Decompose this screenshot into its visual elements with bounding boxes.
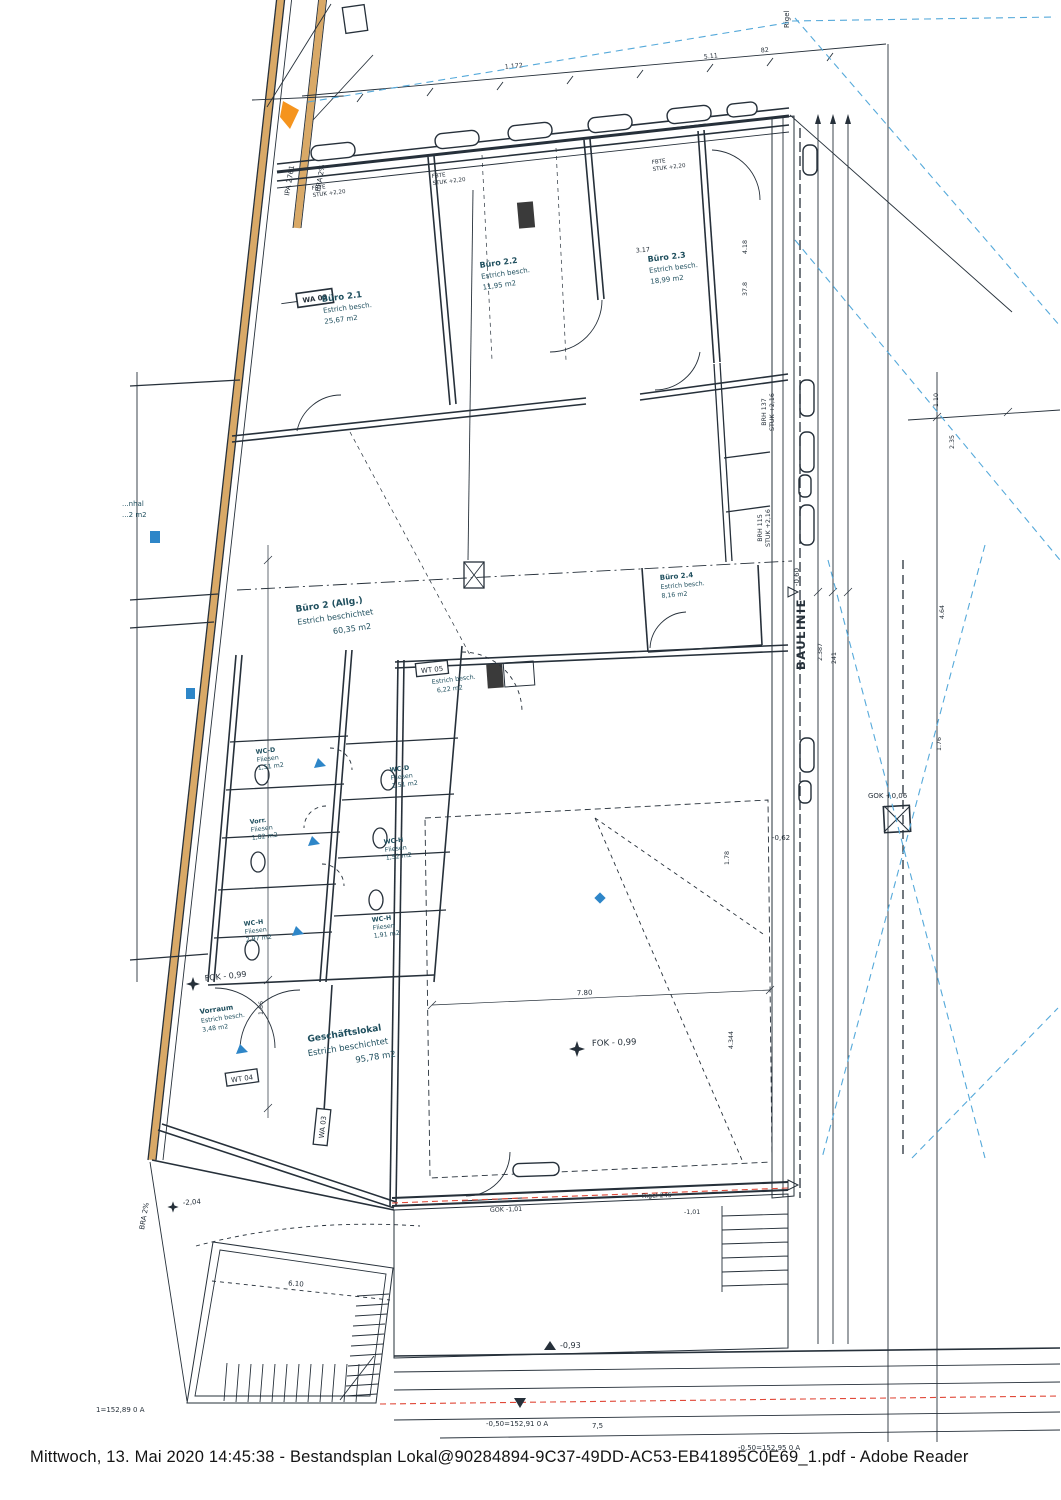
rigel-top-label: Rigel <box>783 10 791 28</box>
dim-418: 4.18 <box>742 240 749 254</box>
room-label-abstell-finish: Estrich besch. <box>431 674 476 686</box>
dim-610: 6.10 <box>288 1279 304 1288</box>
minus093-label: -0,93 <box>560 1341 581 1350</box>
room-labels-upper: WA 03 Büro 2.1 Estrich besch. 25,67 m2 B… <box>280 240 749 695</box>
wa03-bottom-box: WA 03 <box>313 1108 331 1145</box>
room-label-buro21-area: 25,67 m2 <box>324 314 358 326</box>
top-dimension-line: 1.172 5.11 82 <box>302 44 886 102</box>
brh137-label: BRH 137 <box>761 398 768 425</box>
dim-317: 3.17 <box>636 247 650 255</box>
cutoff-label-1: ...nhal <box>122 500 144 508</box>
dim-178: 1.78 <box>724 851 731 865</box>
room-label-buro24-name: Büro 2.4 <box>659 571 693 582</box>
cutoff-label-2: ...2 m2 <box>122 511 147 519</box>
dim-176: 1.76 <box>936 737 943 751</box>
gok006-label: GOK +0,06 <box>868 792 908 800</box>
dim-780: 7.80 <box>577 989 593 998</box>
floorplan-canvas: IPA 2761 BRA 2% 1.172 5.11 82 FBTE STUK … <box>0 0 1061 1500</box>
geschaeftslokal: Geschäftslokal Estrich beschichtet 95,78… <box>305 800 774 1178</box>
fok-lokal-label: FOK - 0,99 <box>592 1037 637 1049</box>
level-mid-dim: 7,5 <box>592 1422 603 1430</box>
bottom-zone: GOK -1,01 Rigel 245 -1,01 -0,93 1=152,89… <box>96 1152 1060 1452</box>
dim-4344: 4.344 <box>728 1031 735 1049</box>
room-label-buro24-area: 8,16 m2 <box>661 591 688 600</box>
minus204-label: -2,04 <box>183 1198 202 1207</box>
minus060-label: -0,60 <box>793 568 801 586</box>
level-mid-label: -0,50=152,91 0 A <box>486 1420 548 1428</box>
baulinie-label: BAULINIE <box>794 598 808 670</box>
bra-bottom-label: BRA 2% <box>138 1202 151 1231</box>
room-label-vorraum-area: 3,48 m2 <box>202 1023 229 1034</box>
dim-464: 4.64 <box>939 605 946 619</box>
room-label-buro2allg-area: 60,35 m2 <box>332 622 371 636</box>
dim-82: 82 <box>761 47 770 55</box>
dim-511: 5.11 <box>704 52 719 60</box>
minus062-label: -0,62 <box>772 834 790 842</box>
wt04-box: WT 04 <box>225 1069 258 1086</box>
dim-1172: 1.172 <box>505 62 524 71</box>
room-label-geschaeft-area: 95,78 m2 <box>355 1049 397 1065</box>
room-label-abstell-area: 6,22 m2 <box>436 684 463 694</box>
dim-235: 2.35 <box>949 435 956 449</box>
dim-241: 241 <box>831 652 838 664</box>
room-label-buro23-finish: Estrich besch. <box>649 261 699 275</box>
fok-vorraum-label: FOK - 0,99 <box>204 970 247 983</box>
gok101-label: GOK -1,01 <box>490 1206 522 1214</box>
room-label-buro23-name: Büro 2.3 <box>647 250 686 264</box>
brh115-label: BRH 115 <box>757 514 764 541</box>
room-label-buro24-finish: Estrich besch. <box>660 580 705 591</box>
room-label-buro23-area: 18,99 m2 <box>650 274 684 286</box>
minus101-label: -1,01 <box>684 1209 700 1216</box>
right-wall: BRH 137 STUK +2,16 BRH 115 STUK +2,16 BA… <box>308 10 1060 1442</box>
wt05-box: WT 05 <box>415 660 448 676</box>
level-left-label: 1=152,89 0 A <box>96 1406 145 1414</box>
room-label-buro22-area: 11,95 m2 <box>482 279 516 292</box>
dim-378: 37.8 <box>742 282 749 296</box>
dim-110: 1.10 <box>933 393 940 407</box>
stuk216a-label: STUK +2,16 <box>769 393 776 431</box>
rigel245-label: Rigel 245 <box>642 1192 672 1200</box>
adobe-reader-footer: Mittwoch, 13. Mai 2020 14:45:38 - Bestan… <box>30 1448 969 1467</box>
vorraum: FOK - 0,99 Vorraum Estrich besch. 3,48 m… <box>158 970 396 1208</box>
stuk216b-label: STUK +2,16 <box>765 509 772 547</box>
